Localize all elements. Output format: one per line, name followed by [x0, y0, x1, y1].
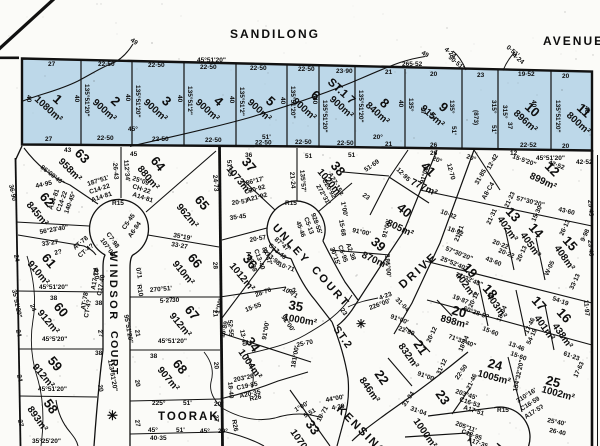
svg-text:45°: 45° [200, 427, 210, 435]
svg-text:21: 21 [385, 69, 393, 76]
svg-text:20·12: 20·12 [425, 325, 439, 343]
svg-text:A14·81: A14·81 [131, 191, 154, 204]
svg-text:38: 38 [95, 300, 103, 307]
svg-text:21: 21 [133, 329, 141, 338]
svg-text:24: 24 [14, 329, 22, 338]
svg-text:65: 65 [192, 192, 213, 213]
svg-text:135°51'20": 135°51'20" [134, 85, 142, 118]
svg-text:38: 38 [50, 295, 58, 302]
svg-text:40: 40 [583, 106, 590, 114]
svg-text:37: 37 [428, 112, 435, 120]
svg-text:R26: R26 [249, 394, 262, 403]
svg-text:12·42: 12·42 [486, 153, 501, 171]
svg-text:51': 51' [490, 125, 497, 134]
svg-text:35°19': 35°19' [173, 231, 193, 242]
svg-text:135°57': 135°57' [298, 169, 308, 192]
svg-text:898m²: 898m² [439, 313, 470, 331]
svg-text:45: 45 [130, 151, 138, 158]
svg-text:19·71: 19·71 [316, 405, 331, 423]
svg-text:270°51': 270°51' [149, 284, 172, 294]
svg-text:26·40: 26·40 [549, 427, 567, 437]
svg-text:38: 38 [95, 350, 103, 357]
svg-text:20: 20 [212, 362, 220, 370]
svg-text:135°51'20": 135°51'20" [357, 90, 365, 123]
svg-text:315°: 315° [501, 105, 509, 119]
svg-text:31·12: 31·12 [435, 357, 449, 375]
svg-text:40: 40 [73, 95, 80, 103]
svg-text:95°51'20": 95°51'20" [122, 314, 135, 344]
svg-text:181°00': 181°00' [383, 254, 393, 277]
svg-text:20·13: 20·13 [515, 244, 529, 262]
svg-text:24: 24 [28, 303, 37, 313]
svg-text:20°: 20° [218, 427, 228, 435]
svg-text:21: 21 [385, 141, 393, 148]
svg-text:R10: R10 [135, 284, 144, 297]
svg-text:43: 43 [64, 147, 72, 154]
svg-text:T: T [490, 441, 505, 446]
svg-text:25·49: 25·49 [586, 200, 594, 218]
svg-text:20: 20 [96, 384, 104, 393]
svg-text:22·50: 22·50 [97, 135, 114, 142]
svg-text:27: 27 [133, 419, 141, 428]
svg-text:36: 36 [245, 152, 253, 159]
svg-text:26·43: 26·43 [111, 163, 119, 181]
svg-text:40: 40 [228, 96, 235, 104]
svg-text:22·50: 22·50 [255, 140, 272, 147]
svg-text:135°51'20": 135°51'20" [321, 100, 329, 133]
svg-text:42·52: 42·52 [576, 159, 593, 166]
svg-text:135°51'2": 135°51'2" [238, 87, 246, 116]
svg-text:(873): (873) [472, 110, 479, 125]
svg-text:DRIVE: DRIVE [397, 250, 440, 291]
svg-text:27: 27 [16, 419, 24, 428]
svg-text:51: 51 [305, 153, 313, 160]
svg-text:33·27: 33·27 [41, 239, 59, 248]
svg-text:22·50: 22·50 [152, 136, 169, 143]
svg-text:225°: 225° [152, 399, 166, 407]
svg-text:51': 51' [183, 400, 192, 407]
svg-text:49: 49 [420, 50, 430, 60]
svg-text:66: 66 [185, 250, 206, 271]
svg-text:45°51'20": 45°51'20" [197, 56, 226, 64]
svg-text:WINDSOR: WINDSOR [107, 251, 119, 322]
svg-text:20: 20 [562, 73, 570, 80]
svg-text:12·95: 12·95 [395, 166, 412, 183]
svg-text:40: 40 [25, 95, 32, 103]
svg-text:265·52: 265·52 [402, 61, 423, 68]
svg-text:51·05: 51·05 [225, 160, 233, 178]
svg-text:24·73: 24·73 [211, 175, 219, 193]
svg-text:R26: R26 [230, 419, 239, 432]
svg-text:20·57: 20·57 [231, 198, 249, 207]
svg-text:45°5'20": 45°5'20" [42, 335, 67, 343]
svg-text:1000m²: 1000m² [411, 416, 440, 446]
svg-text:21·24: 21·24 [288, 172, 296, 190]
svg-text:23: 23 [433, 387, 454, 407]
svg-text:15·68: 15·68 [337, 219, 347, 237]
svg-text:51: 51 [348, 152, 356, 159]
svg-text:22·50: 22·50 [98, 61, 115, 68]
svg-text:135°: 135° [448, 100, 456, 114]
svg-text:40: 40 [279, 97, 286, 105]
svg-text:AVENUE: AVENUE [543, 34, 600, 48]
svg-text:17·63: 17·63 [572, 360, 586, 378]
svg-text:135°51'20": 135°51'20" [554, 100, 562, 133]
svg-text:2?: 2? [54, 248, 63, 257]
svg-text:26: 26 [430, 142, 438, 149]
svg-text:28: 28 [211, 262, 219, 270]
svg-text:64: 64 [148, 153, 169, 174]
svg-text:67: 67 [182, 302, 203, 323]
svg-text:22·50: 22·50 [200, 64, 217, 71]
svg-text:22·50: 22·50 [337, 140, 354, 147]
svg-text:49: 49 [129, 37, 139, 47]
svg-text:A17·51: A17·51 [462, 404, 485, 417]
svg-text:58: 58 [41, 396, 62, 416]
svg-text:4·24: 4·24 [511, 52, 526, 66]
svg-text:40: 40 [530, 100, 537, 108]
svg-text:20: 20 [430, 71, 438, 78]
svg-text:35: 35 [287, 297, 304, 314]
svg-text:27: 27 [212, 415, 220, 423]
svg-text:22·52: 22·52 [520, 142, 537, 149]
svg-text:112°34': 112°34' [122, 159, 132, 182]
svg-text:51': 51' [176, 427, 185, 434]
svg-text:20·57: 20·57 [249, 234, 267, 244]
svg-text:43·60: 43·60 [484, 255, 502, 268]
svg-text:1°00': 1°00' [339, 201, 350, 218]
svg-text:20·22: 20·22 [497, 247, 515, 260]
svg-text:12·70: 12·70 [445, 163, 456, 181]
svg-text:22·80: 22·80 [397, 325, 415, 337]
svg-text:135°51'20": 135°51'20" [289, 86, 297, 119]
svg-text:45°: 45° [148, 426, 158, 434]
svg-text:17: 17 [419, 107, 426, 115]
svg-text:22·50: 22·50 [250, 65, 267, 72]
svg-text:61·23: 61·23 [562, 350, 580, 362]
svg-text:31·85: 31·85 [474, 168, 489, 186]
svg-text:30: 30 [172, 297, 180, 304]
svg-text:45°: 45° [128, 125, 138, 133]
svg-text:W·05: W·05 [543, 259, 556, 276]
svg-text:40: 40 [397, 100, 404, 108]
svg-text:22·50: 22·50 [298, 66, 315, 73]
svg-text:22·50: 22·50 [148, 62, 165, 69]
svg-text:21: 21 [211, 310, 219, 318]
svg-text:40: 40 [394, 200, 415, 221]
svg-text:27: 27 [48, 61, 56, 68]
svg-text:135°51'20": 135°51'20" [83, 84, 91, 117]
svg-text:20°: 20° [373, 133, 383, 141]
svg-text:91°00': 91°00' [416, 369, 437, 383]
svg-text:154°32'20": 154°32'20" [511, 359, 526, 392]
svg-text:51·69: 51·69 [363, 158, 381, 173]
svg-text:51': 51' [450, 126, 457, 135]
svg-text:59: 59 [45, 353, 66, 374]
svg-text:15·5'20": 15·5'20" [511, 153, 537, 168]
svg-text:52·55: 52·55 [226, 320, 234, 338]
svg-text:24: 24 [12, 254, 20, 263]
svg-text:45°51'20": 45°51'20" [158, 337, 187, 345]
svg-text:15·60: 15·60 [481, 325, 499, 338]
svg-text:20°: 20° [214, 400, 224, 408]
svg-text:43·60: 43·60 [558, 206, 576, 217]
svg-text:37: 37 [506, 122, 513, 130]
svg-text:31·04: 31·04 [409, 405, 427, 417]
svg-text:15·55: 15·55 [244, 301, 262, 313]
svg-text:35°25'20": 35°25'20" [32, 437, 61, 445]
svg-text:COURT: COURT [309, 264, 352, 310]
svg-text:33·27: 33·27 [171, 241, 189, 251]
svg-text:✳: ✳ [356, 317, 366, 331]
svg-text:45°51'20": 45°51'20" [39, 283, 68, 291]
svg-text:071: 071 [134, 267, 143, 279]
svg-text:33·13: 33·13 [568, 272, 582, 290]
svg-text:38: 38 [150, 353, 158, 360]
svg-text:20: 20 [133, 379, 141, 388]
svg-text:2?: 2? [96, 329, 104, 338]
svg-text:22·50: 22·50 [295, 139, 312, 146]
svg-text:181°00': 181°00' [289, 345, 301, 369]
svg-text:135°: 135° [407, 98, 415, 112]
svg-text:45°51'20": 45°51'20" [38, 385, 67, 393]
svg-text:19·52: 19·52 [518, 71, 535, 78]
svg-text:22·50: 22·50 [205, 137, 222, 144]
svg-text:91°00': 91°00' [352, 226, 372, 238]
svg-text:91°00': 91°00' [260, 320, 271, 340]
svg-text:28·70: 28·70 [254, 286, 272, 298]
svg-text:35·45: 35·45 [229, 213, 247, 222]
svg-text:R15: R15 [285, 200, 297, 207]
svg-text:23·90: 23·90 [336, 68, 353, 75]
svg-text:24: 24 [15, 374, 23, 383]
svg-text:35°51'20": 35°51'20" [10, 289, 24, 319]
svg-text:22: 22 [372, 367, 393, 387]
svg-text:R15: R15 [497, 407, 509, 414]
svg-text:✳: ✳ [107, 408, 118, 423]
svg-text:22·50: 22·50 [454, 363, 469, 381]
svg-text:13·40: 13·40 [238, 329, 248, 347]
svg-text:60°28·5?: 60°28·5? [462, 304, 490, 321]
svg-text:11·97: 11·97 [582, 300, 590, 317]
svg-text:23: 23 [361, 192, 371, 202]
svg-text:21·46: 21·46 [465, 372, 479, 390]
svg-text:23: 23 [477, 72, 485, 79]
svg-text:57°30'20": 57°30'20" [516, 194, 546, 209]
svg-text:44·95: 44·95 [35, 180, 53, 190]
svg-text:40: 40 [176, 95, 183, 103]
svg-text:40: 40 [124, 94, 131, 102]
svg-text:ST.2: ST.2 [331, 324, 355, 351]
svg-text:63: 63 [72, 146, 93, 167]
svg-text:TOORAK: TOORAK [158, 411, 220, 423]
svg-text:23·40: 23·40 [586, 240, 594, 258]
svg-text:68: 68 [170, 356, 191, 377]
svg-text:R15: R15 [112, 200, 124, 207]
svg-text:27: 27 [45, 136, 53, 143]
svg-text:A8·C4: A8·C4 [481, 181, 497, 201]
svg-text:40: 40 [311, 97, 318, 105]
svg-text:60: 60 [51, 299, 72, 320]
svg-text:20°: 20° [465, 152, 477, 163]
svg-text:315°: 315° [490, 100, 498, 114]
svg-text:135°51'2": 135°51'2" [186, 86, 194, 115]
svg-text:40·35: 40·35 [150, 435, 167, 442]
svg-text:20: 20 [562, 143, 570, 150]
svg-text:SANDILONG: SANDILONG [230, 27, 320, 41]
svg-text:18·40: 18·40 [226, 382, 234, 400]
